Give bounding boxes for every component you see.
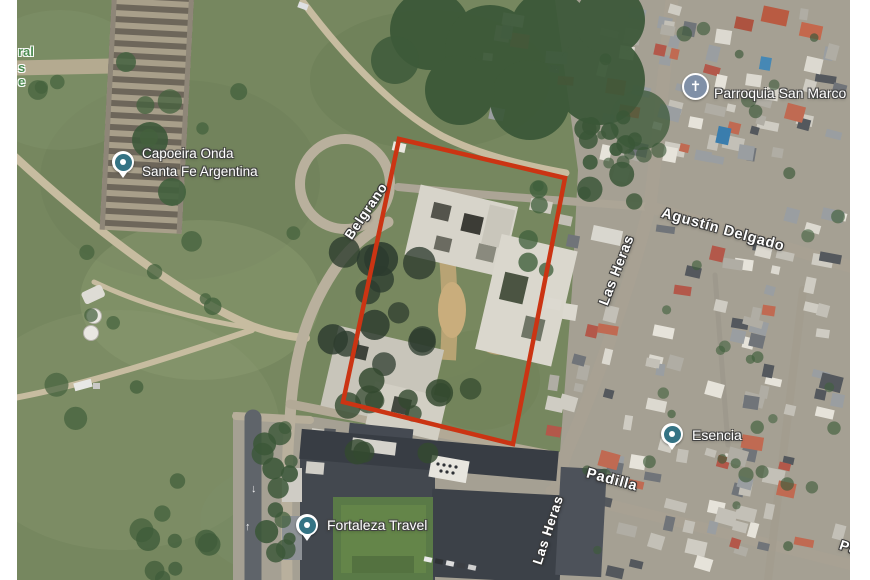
map-screenshot: ↑ ↓: [0, 0, 870, 580]
place-pin-icon[interactable]: [296, 514, 318, 536]
place-label-text[interactable]: Parroquia San Marco: [714, 84, 846, 102]
swimming-pool: [759, 56, 772, 71]
place-label-text[interactable]: Esencia: [692, 426, 742, 444]
place-pin-icon[interactable]: [112, 151, 134, 173]
svg-text:↑: ↑: [245, 521, 251, 533]
place-label-text[interactable]: Capoeira OndaSanta Fe Argentina: [142, 145, 258, 181]
svg-text:↓: ↓: [251, 483, 257, 495]
right-white-margin: [850, 0, 870, 580]
left-white-margin: [0, 0, 17, 580]
church-icon[interactable]: ✝: [682, 73, 709, 100]
place-pin-icon[interactable]: [661, 423, 683, 445]
place-label-text[interactable]: Fortaleza Travel: [327, 516, 427, 534]
